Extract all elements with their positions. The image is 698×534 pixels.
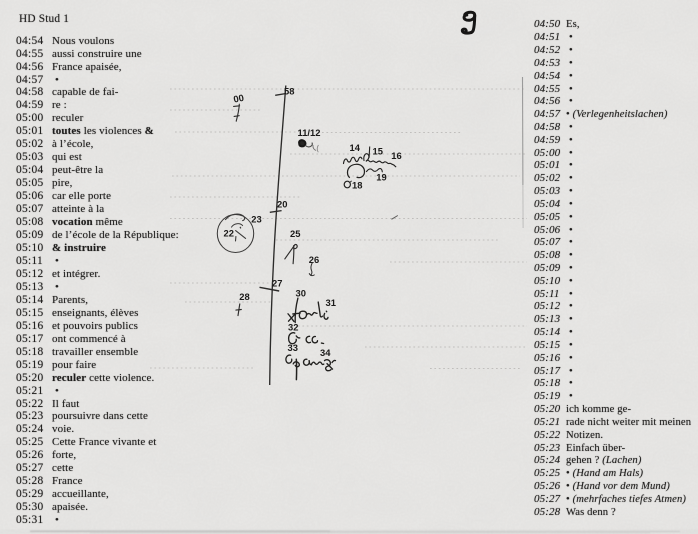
svg-text:32: 32 [288, 322, 298, 333]
svg-text:19: 19 [376, 172, 386, 183]
svg-text:27: 27 [272, 277, 282, 288]
svg-text:26: 26 [309, 254, 319, 265]
svg-text:58: 58 [284, 86, 294, 97]
svg-text:25: 25 [290, 228, 300, 239]
svg-text:22: 22 [224, 228, 234, 239]
svg-text:34: 34 [320, 347, 331, 358]
svg-text:18: 18 [352, 179, 362, 190]
svg-text:14: 14 [350, 142, 361, 153]
svg-text:28: 28 [239, 291, 249, 302]
svg-text:15: 15 [373, 146, 383, 157]
svg-text:20: 20 [277, 198, 287, 209]
svg-text:30: 30 [296, 287, 306, 298]
svg-text:23: 23 [251, 214, 261, 225]
svg-text:31: 31 [326, 297, 336, 308]
svg-text:00: 00 [232, 92, 244, 105]
svg-text:16: 16 [391, 150, 401, 161]
svg-text:11/12: 11/12 [298, 127, 321, 138]
